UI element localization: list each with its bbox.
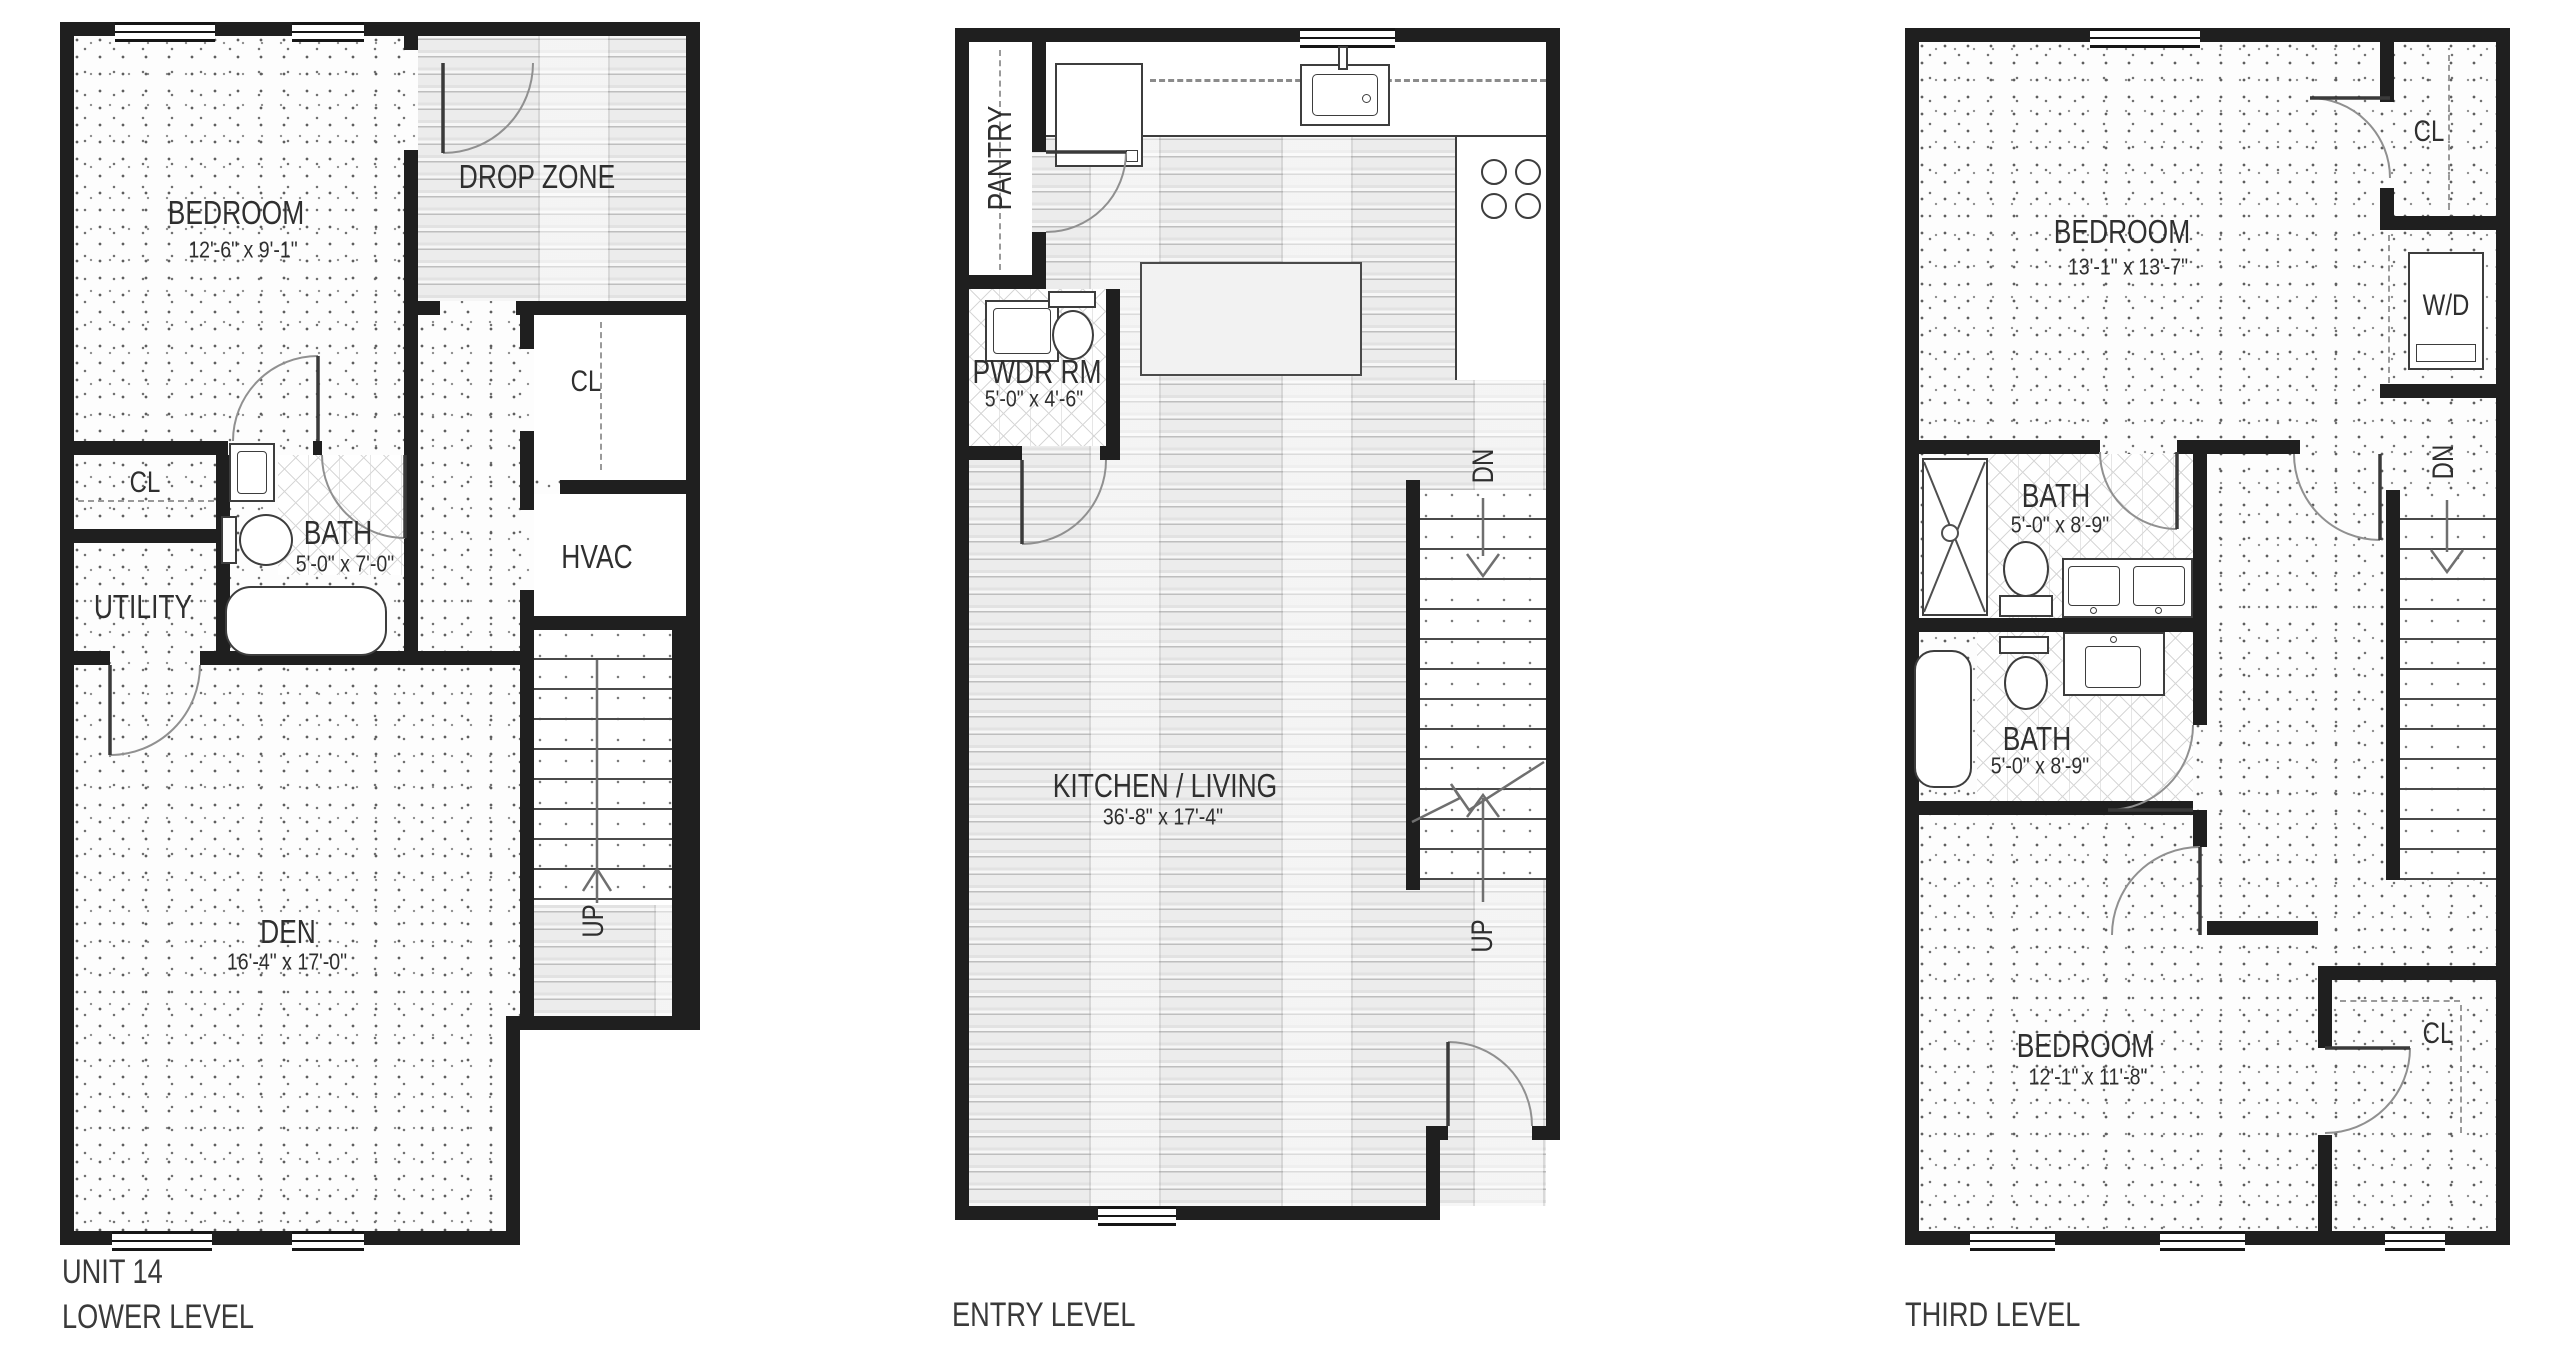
room-label-bath-front: BATH <box>2022 477 2090 515</box>
shower-icon <box>1922 458 1988 616</box>
wall <box>516 301 686 315</box>
wall <box>74 441 228 455</box>
wall <box>2496 28 2510 1245</box>
room-label-drop-zone: DROP ZONE <box>459 158 615 196</box>
toilet-bowl-icon <box>2004 656 2048 710</box>
room-dims-bath-rear: 5'-0" x 8'-9" <box>1991 753 2090 780</box>
washer-dryer-tray-icon <box>2416 344 2476 362</box>
wall <box>534 616 686 630</box>
window <box>292 22 364 42</box>
closet-rod-dashed <box>2340 1000 2460 1002</box>
sink-basin-icon <box>2133 566 2185 606</box>
wall <box>2318 980 2332 1048</box>
wall <box>672 630 686 1030</box>
room-label-den: DEN <box>260 913 316 951</box>
room-dims-powder: 5'-0" x 4'-6" <box>985 386 1084 413</box>
room-label-closet-rear: CL <box>2423 1017 2454 1051</box>
window <box>2160 1231 2245 1251</box>
room-label-closet-hall: CL <box>130 466 161 500</box>
toilet-bowl-icon <box>2003 541 2049 597</box>
wall <box>404 36 418 50</box>
closet-rod-dashed <box>78 500 214 502</box>
laundry-front-dashed <box>2388 235 2390 383</box>
wall <box>506 1030 520 1245</box>
wall <box>2193 440 2207 725</box>
wall <box>1106 289 1120 446</box>
wall <box>60 22 74 1245</box>
faucet-dot-icon <box>2110 636 2117 643</box>
wall <box>1905 28 1919 1245</box>
cooktop-burner-icon <box>1515 193 1541 219</box>
wall <box>418 301 440 315</box>
toilet-bowl-icon <box>239 514 293 566</box>
caption-entry-level: ENTRY LEVEL <box>952 1296 1135 1335</box>
toilet-tank-icon <box>1999 636 2049 654</box>
closet-rod-dashed <box>2460 1005 2462 1133</box>
room-dims-bedroom-rear: 12'-1" x 11'-8" <box>2029 1064 2148 1091</box>
wall <box>955 28 969 1220</box>
bathtub-icon <box>225 586 387 656</box>
floor-closet-upper <box>534 315 686 480</box>
closet-rod-dashed <box>2448 55 2450 210</box>
fridge-handle-icon <box>1126 150 1138 162</box>
wall <box>404 150 418 665</box>
room-label-bedroom-rear: BEDROOM <box>2017 1027 2153 1065</box>
room-label-bedroom-front: BEDROOM <box>2054 213 2190 251</box>
wall <box>520 431 534 480</box>
room-label-utility: UTILITY <box>94 588 192 626</box>
caption-third-level: THIRD LEVEL <box>1905 1296 2080 1335</box>
wall <box>2386 490 2400 880</box>
cooktop-burner-icon <box>1515 159 1541 185</box>
wall <box>1032 232 1046 275</box>
caption-unit: UNIT 14 <box>62 1253 163 1292</box>
wall <box>2318 966 2496 980</box>
wall <box>955 1206 1440 1220</box>
wall <box>2193 810 2207 847</box>
wall <box>955 28 1560 42</box>
sink-basin-icon <box>993 308 1051 354</box>
room-label-kitchen-living: KITCHEN / LIVING <box>1053 767 1277 805</box>
window <box>1098 1206 1176 1226</box>
wall <box>2207 921 2318 935</box>
room-label-bath: BATH <box>304 514 372 552</box>
room-dims-den: 16'-4" x 17'-0" <box>227 949 347 976</box>
window <box>2385 1231 2445 1251</box>
wall <box>1532 1126 1560 1140</box>
stairs-up-treads <box>534 630 672 905</box>
toilet-tank-icon <box>1048 291 1096 308</box>
stair-label-up: UP <box>577 904 611 937</box>
room-dims-bedroom: 12'-6" x 9'-1" <box>188 237 297 264</box>
room-dims-bedroom-front: 13'-1" x 13'-7" <box>2068 254 2188 281</box>
floorplan-sheet: BEDROOM 12'-6" x 9'-1" DROP ZONE CL CL B… <box>0 0 2560 1365</box>
wall <box>1426 1126 1440 1220</box>
faucet-dot-icon <box>2090 607 2097 614</box>
stair-label-dn: DN <box>2427 445 2461 480</box>
wall <box>313 441 322 455</box>
room-dims-bath-front: 5'-0" x 8'-9" <box>2011 512 2110 539</box>
wall <box>506 1016 700 1030</box>
wall <box>1546 28 1560 1140</box>
stairs-treads <box>1420 490 1546 880</box>
wall <box>2380 188 2394 216</box>
wall <box>2380 384 2496 398</box>
window <box>2090 28 2200 48</box>
cooktop-burner-icon <box>1481 159 1507 185</box>
faucet-icon <box>1338 46 1348 70</box>
wall <box>520 315 534 349</box>
toilet-tank-icon <box>221 516 237 564</box>
room-label-bedroom: BEDROOM <box>168 194 304 232</box>
room-label-closet-upper: CL <box>571 365 602 399</box>
stair-label-up: UP <box>1466 919 1500 952</box>
laundry-label: W/D <box>2423 289 2470 323</box>
wall <box>560 480 686 494</box>
stairs-down-treads <box>2400 490 2496 880</box>
sink-basin-icon <box>2068 566 2120 606</box>
wall <box>1905 28 2510 42</box>
wall <box>74 529 216 543</box>
sink-basin-icon <box>2085 646 2141 688</box>
window <box>115 22 215 42</box>
wall <box>520 480 534 510</box>
kitchen-island <box>1140 262 1362 376</box>
wall <box>2380 216 2496 230</box>
window <box>112 1231 212 1251</box>
wall <box>1919 440 2100 454</box>
caption-lower-level: LOWER LEVEL <box>62 1298 254 1337</box>
window <box>1300 28 1395 48</box>
wall <box>1919 801 2193 815</box>
room-dims-bath: 5'-0" x 7'-0" <box>296 551 395 578</box>
faucet-dot-icon <box>2155 607 2162 614</box>
sink-basin-icon <box>237 451 267 494</box>
wall <box>955 275 1046 289</box>
wall <box>1032 42 1046 152</box>
bathtub-icon <box>1914 650 1972 788</box>
wall <box>2380 42 2394 102</box>
room-label-closet-front: CL <box>2414 115 2445 149</box>
faucet-dot-icon <box>1362 94 1371 103</box>
window <box>292 1231 364 1251</box>
room-label-hvac: HVAC <box>561 538 632 576</box>
wall <box>686 22 700 1030</box>
room-label-pantry: PANTRY <box>981 106 1019 211</box>
wall <box>1100 446 1120 460</box>
exterior-notch <box>520 1030 686 1231</box>
room-dims-kitchen-living: 36'-8" x 17'-4" <box>1103 804 1223 831</box>
wall <box>520 590 534 630</box>
wall <box>520 630 534 1030</box>
wall <box>955 446 1022 460</box>
wall <box>1406 480 1420 890</box>
stair-label-dn: DN <box>1467 449 1501 484</box>
wall <box>2318 1135 2332 1231</box>
wall <box>74 651 110 665</box>
wall <box>1919 618 2193 632</box>
window <box>1970 1231 2055 1251</box>
toilet-tank-icon <box>1999 595 2053 617</box>
cooktop-burner-icon <box>1481 193 1507 219</box>
